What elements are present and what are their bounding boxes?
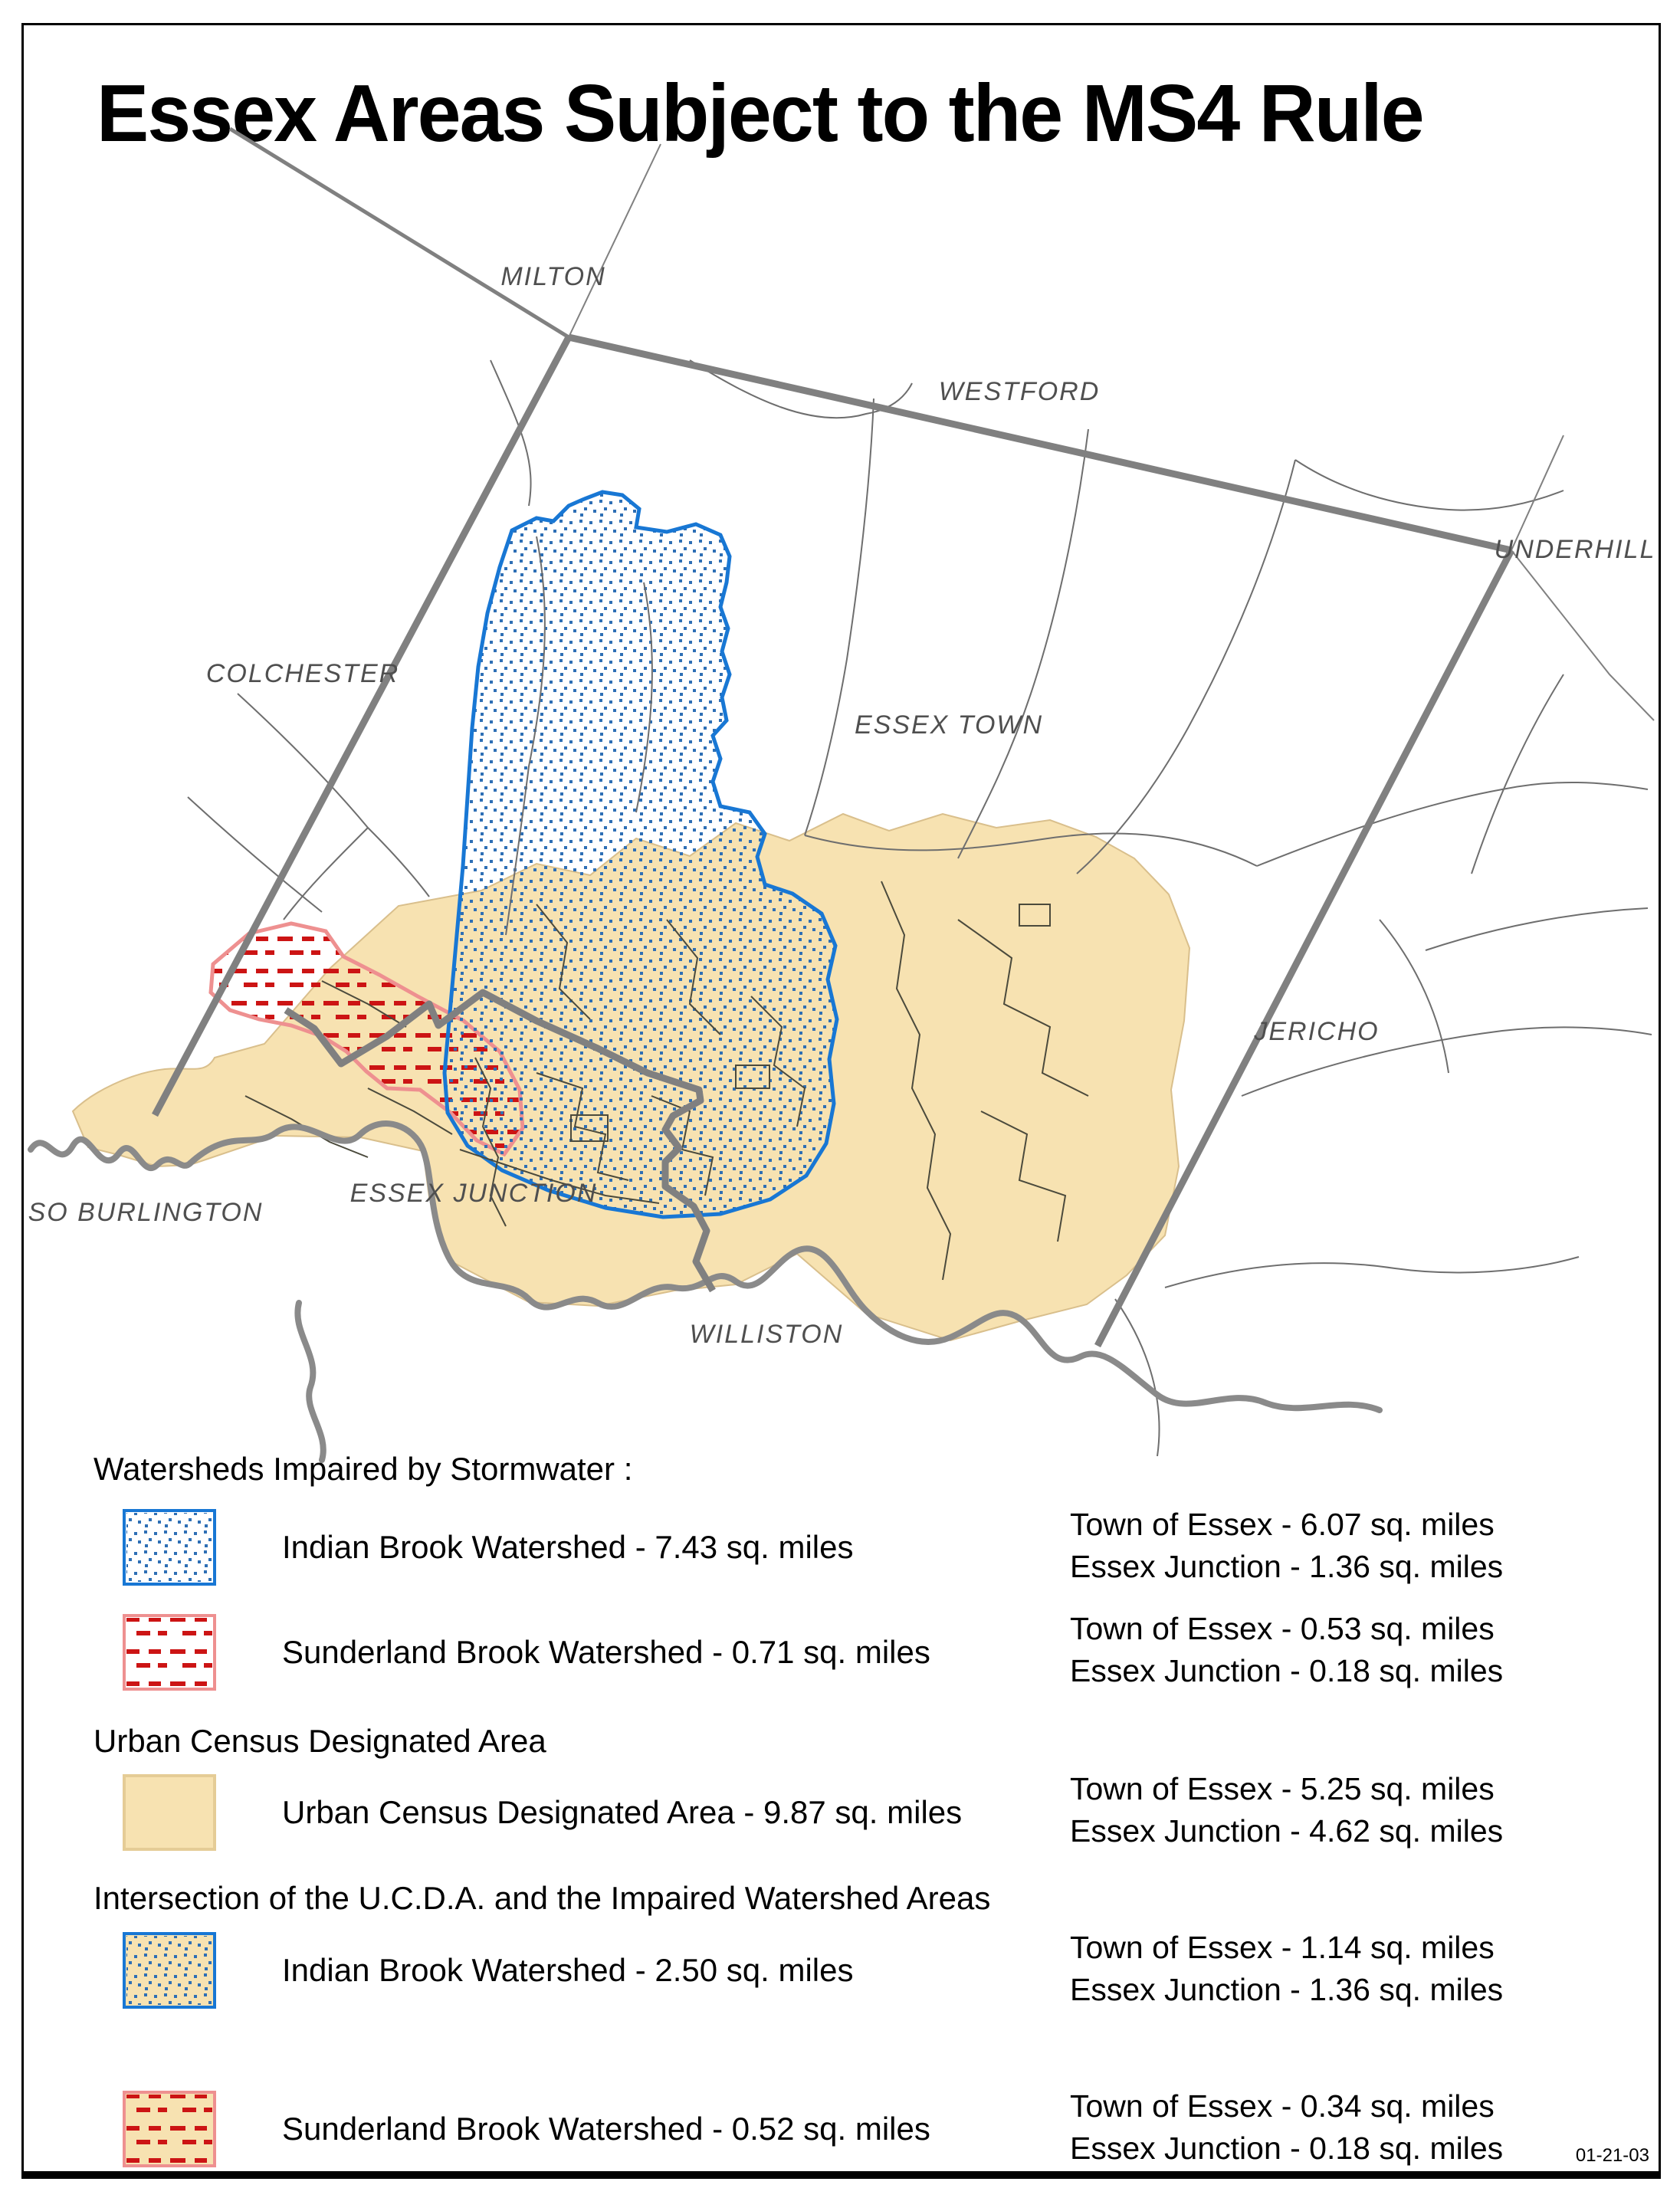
legend-label-ucda: Urban Census Designated Area - 9.87 sq. … <box>282 1794 962 1831</box>
label-milton: MILTON <box>500 262 605 291</box>
date-stamp: 01-21-03 <box>1418 2145 1649 2167</box>
label-essex-junction: ESSEX JUNCTION <box>350 1179 598 1208</box>
swatch-indian-brook-intersection-icon <box>123 1932 216 2009</box>
legend-row-indian-brook-intersection: Indian Brook Watershed - 2.50 sq. miles <box>123 1931 853 2009</box>
swatch-sunderland-brook-icon <box>123 1614 216 1691</box>
legend-heading-ucda: Urban Census Designated Area <box>94 1723 546 1760</box>
legend-label-sunderland-brook-intersection: Sunderland Brook Watershed - 0.52 sq. mi… <box>282 2111 930 2147</box>
legend-stats-indian-brook: Town of Essex - 6.07 sq. miles Essex Jun… <box>1070 1504 1503 1588</box>
swatch-ucda-icon <box>123 1774 216 1851</box>
stat-line: Town of Essex - 6.07 sq. miles <box>1070 1504 1503 1546</box>
stat-line: Town of Essex - 0.34 sq. miles <box>1070 2085 1503 2127</box>
legend-heading-intersection: Intersection of the U.C.D.A. and the Imp… <box>94 1880 990 1917</box>
swatch-indian-brook-icon <box>123 1509 216 1586</box>
legend-heading-watersheds: Watersheds Impaired by Stormwater : <box>94 1451 632 1488</box>
stat-line: Essex Junction - 0.18 sq. miles <box>1070 1650 1503 1692</box>
label-essex-town: ESSEX TOWN <box>855 710 1043 740</box>
legend-row-sunderland-brook: Sunderland Brook Watershed - 0.71 sq. mi… <box>123 1613 930 1691</box>
stat-line: Town of Essex - 0.53 sq. miles <box>1070 1608 1503 1650</box>
stat-line: Town of Essex - 1.14 sq. miles <box>1070 1927 1503 1969</box>
stat-line: Essex Junction - 1.36 sq. miles <box>1070 1969 1503 2011</box>
map-page: Essex Areas Subject to the MS4 Rule <box>0 0 1680 2198</box>
label-underhill: UNDERHILL <box>1495 535 1656 564</box>
legend-stats-ucda: Town of Essex - 5.25 sq. miles Essex Jun… <box>1070 1768 1503 1852</box>
legend-row-sunderland-brook-intersection: Sunderland Brook Watershed - 0.52 sq. mi… <box>123 2090 930 2168</box>
legend-label-indian-brook-intersection: Indian Brook Watershed - 2.50 sq. miles <box>282 1952 853 1989</box>
label-westford: WESTFORD <box>939 377 1101 406</box>
legend-row-ucda: Urban Census Designated Area - 9.87 sq. … <box>123 1773 962 1852</box>
label-so-burlington: SO BURLINGTON <box>28 1198 264 1227</box>
legend-stats-indian-brook-intersection: Town of Essex - 1.14 sq. miles Essex Jun… <box>1070 1927 1503 2011</box>
stat-line: Essex Junction - 4.62 sq. miles <box>1070 1810 1503 1852</box>
stat-line: Town of Essex - 5.25 sq. miles <box>1070 1768 1503 1810</box>
label-colchester: COLCHESTER <box>206 659 399 688</box>
swatch-sunderland-brook-intersection-icon <box>123 2091 216 2167</box>
label-williston: WILLISTON <box>690 1320 844 1349</box>
legend-row-indian-brook: Indian Brook Watershed - 7.43 sq. miles <box>123 1508 853 1586</box>
legend-label-indian-brook: Indian Brook Watershed - 7.43 sq. miles <box>282 1529 853 1566</box>
legend-label-sunderland-brook: Sunderland Brook Watershed - 0.71 sq. mi… <box>282 1634 930 1671</box>
label-jericho: JERICHO <box>1253 1017 1379 1046</box>
map: MILTON WESTFORD UNDERHILL COLCHESTER ESS… <box>0 0 1680 2198</box>
legend-stats-sunderland-brook: Town of Essex - 0.53 sq. miles Essex Jun… <box>1070 1608 1503 1692</box>
stat-line: Essex Junction - 1.36 sq. miles <box>1070 1546 1503 1588</box>
